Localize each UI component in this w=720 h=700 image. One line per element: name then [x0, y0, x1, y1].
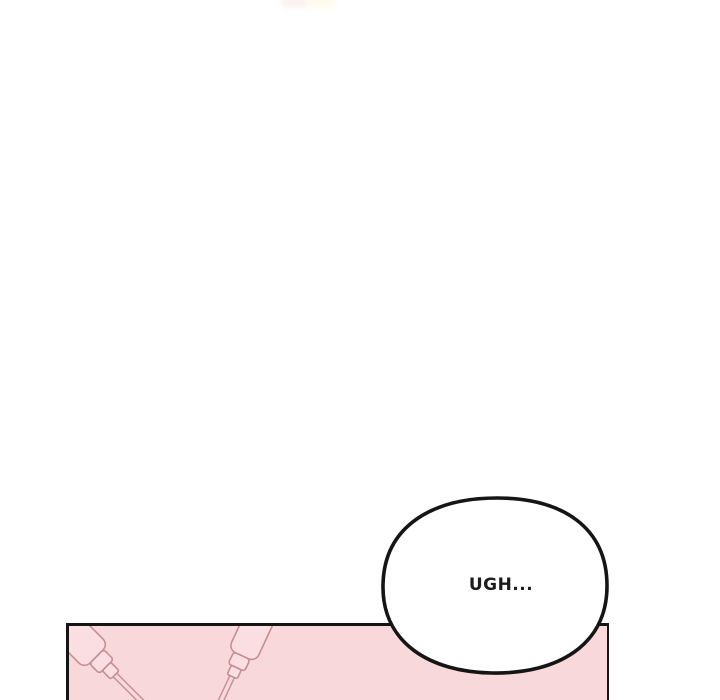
comic-page: UGH... [0, 0, 720, 700]
speech-bubble-text: UGH... [384, 575, 618, 595]
top-smudge-pink [281, 0, 309, 7]
usb-cable-left-icon [69, 626, 160, 700]
usb-cable-center-icon [200, 626, 277, 700]
top-smudge-cream [307, 0, 336, 7]
